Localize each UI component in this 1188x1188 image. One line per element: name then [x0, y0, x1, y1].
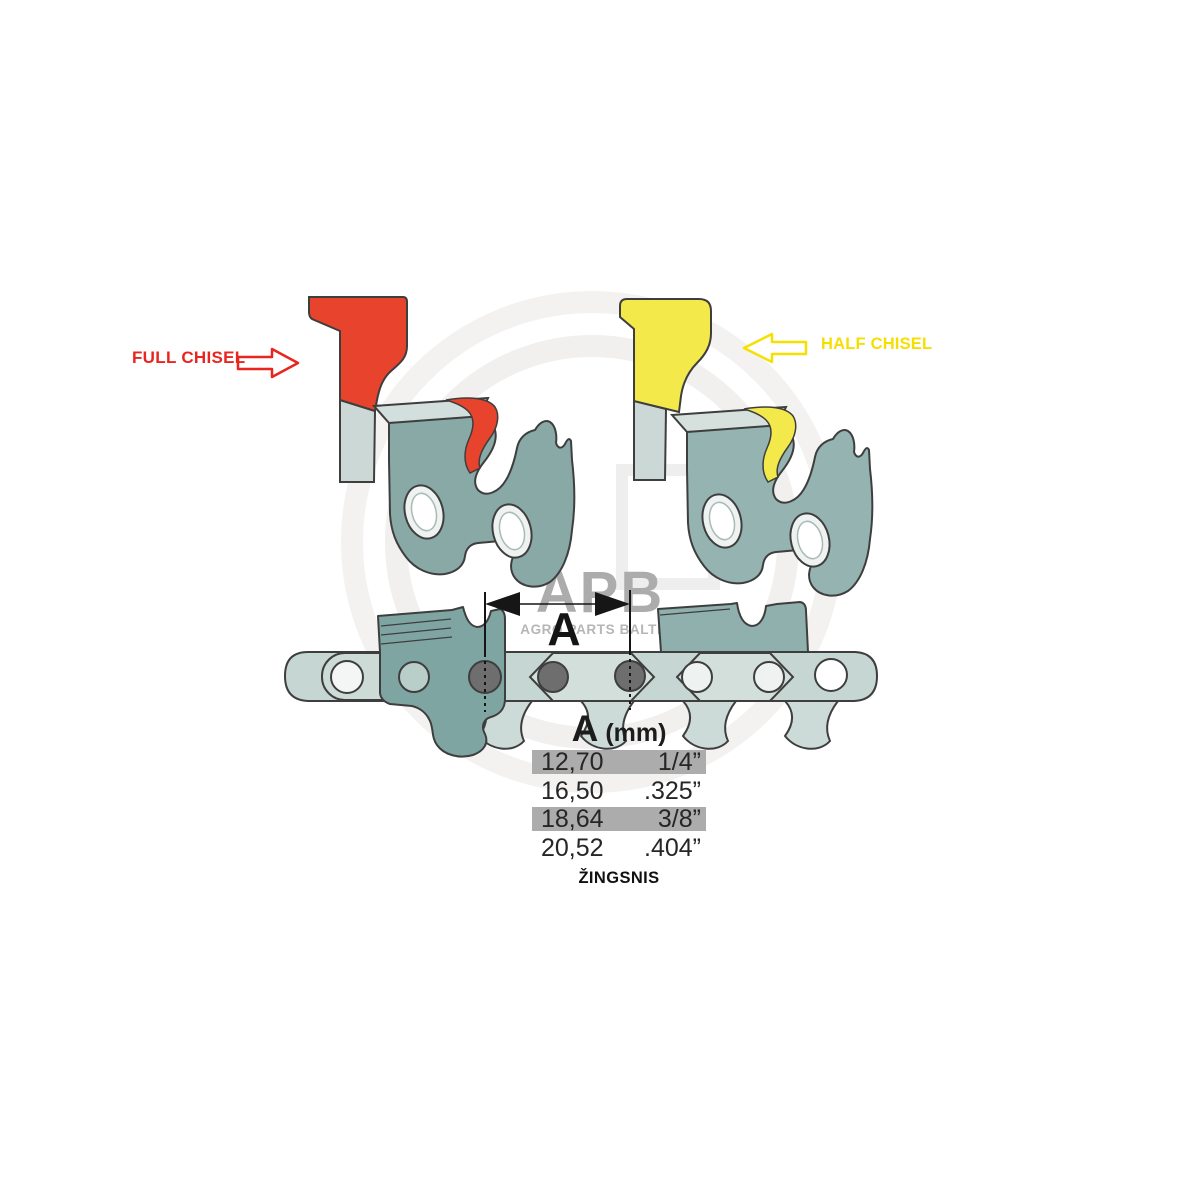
half-chisel-profile-shank: [634, 401, 666, 480]
diagram-page: APB AGRO PARTS BALTIJA: [0, 0, 1188, 1188]
pitch-inch-value: .325”: [644, 779, 706, 803]
pitch-table-header: A (mm): [532, 710, 706, 748]
pitch-table-header-symbol: A: [572, 710, 599, 747]
full-chisel-arrow-icon: [238, 349, 298, 377]
rivet-hole: [399, 662, 429, 692]
full-chisel-profile-shank: [340, 400, 375, 482]
pitch-inch-value: 3/8”: [658, 807, 706, 831]
rivet-hole: [815, 659, 847, 691]
pitch-table-header-unit: (mm): [605, 719, 666, 748]
half-chisel-profile-blade: [620, 299, 711, 412]
half-chisel-label: HALF CHISEL: [821, 335, 932, 354]
table-row: 12,70 1/4”: [532, 750, 706, 774]
table-row: 16,50 .325”: [532, 779, 706, 803]
rivet: [538, 662, 568, 692]
table-row: 18,64 3/8”: [532, 807, 706, 831]
chainsaw-chain-diagram: APB AGRO PARTS BALTIJA: [0, 0, 1188, 1188]
half-chisel-link-3d: [672, 407, 872, 596]
pitch-inch-value: .404”: [644, 836, 706, 860]
pitch-mm-value: 12,70: [532, 750, 604, 774]
rivet-hole: [754, 662, 784, 692]
pitch-dimension-label: A: [540, 606, 588, 652]
full-chisel-label: FULL CHISEL: [132, 348, 246, 368]
pitch-caption: ŽINGSNIS: [532, 869, 706, 888]
rivet-hole: [331, 661, 363, 693]
drive-link-fin: [785, 701, 838, 749]
cutter-body: [658, 602, 808, 652]
table-row: 20,52 .404”: [532, 836, 706, 860]
pitch-mm-value: 20,52: [532, 836, 604, 860]
chain-cutter-half: [658, 602, 808, 652]
pitch-mm-value: 16,50: [532, 779, 604, 803]
pitch-mm-value: 18,64: [532, 807, 604, 831]
rivet-hole: [682, 662, 712, 692]
pitch-inch-value: 1/4”: [658, 750, 706, 774]
